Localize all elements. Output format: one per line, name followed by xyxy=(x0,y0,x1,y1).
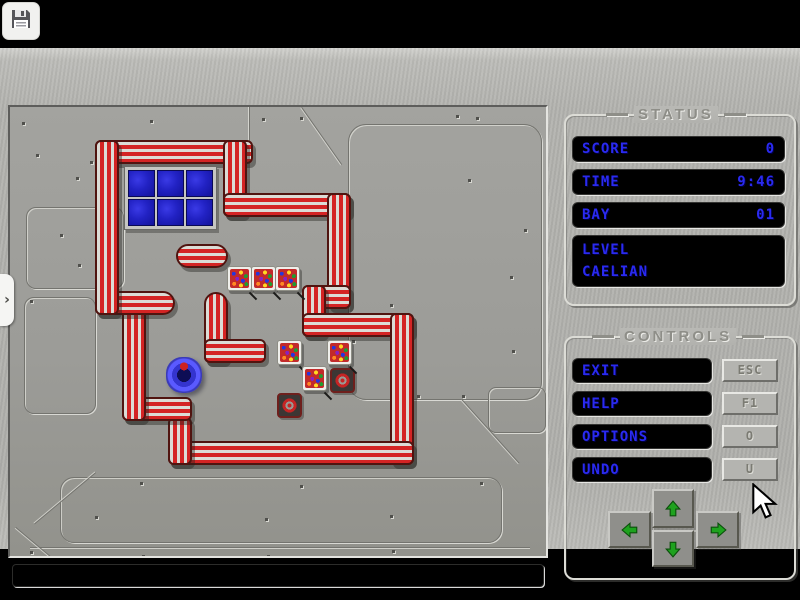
panel-etching xyxy=(348,124,542,400)
crate xyxy=(327,340,352,365)
rivet xyxy=(390,515,393,518)
crate xyxy=(302,366,327,391)
panel-etching xyxy=(488,387,546,433)
title-rule-left xyxy=(592,335,614,338)
rivet xyxy=(267,555,270,558)
crate xyxy=(227,266,252,291)
key-esc-button[interactable]: ESC xyxy=(722,359,778,382)
rivet xyxy=(480,482,483,485)
window-tile xyxy=(128,199,155,226)
rivet xyxy=(140,482,143,485)
undo-button[interactable]: UNDO xyxy=(572,457,712,482)
status-row-time: TIME9:46 xyxy=(572,169,785,195)
window-tile xyxy=(128,170,155,197)
crate xyxy=(277,340,302,365)
status-row-score: SCORE0 xyxy=(572,136,785,162)
rivet xyxy=(462,395,465,398)
rivet xyxy=(95,516,98,519)
arrow-left-icon xyxy=(621,521,639,539)
rivet xyxy=(60,234,63,237)
rivet xyxy=(476,117,479,120)
panel-etching xyxy=(60,477,502,543)
panel-line xyxy=(30,547,530,548)
crate xyxy=(251,266,276,291)
rivet xyxy=(262,118,265,121)
status-value: 0 xyxy=(766,141,775,157)
status-label: BAY xyxy=(582,207,610,223)
arrow-right-icon xyxy=(709,521,727,539)
rivet xyxy=(456,115,459,118)
title-rule-left xyxy=(606,113,628,116)
wall-segment xyxy=(95,140,119,315)
status-label: TIME xyxy=(582,174,620,190)
save-button[interactable] xyxy=(2,2,40,40)
window-tile xyxy=(157,170,184,197)
status-value: 9:46 xyxy=(737,174,775,190)
player-character xyxy=(166,357,202,393)
status-panel-title: STATUS xyxy=(606,106,746,123)
rivet xyxy=(142,555,145,558)
dpad-left-button[interactable] xyxy=(608,511,651,548)
target-pad xyxy=(277,393,302,418)
chevron-right-icon: › xyxy=(4,292,10,308)
title-rule-right xyxy=(724,113,746,116)
rivet xyxy=(300,485,303,488)
rivet xyxy=(300,117,303,120)
side-panel-tab[interactable]: › xyxy=(0,274,14,326)
key-o-button[interactable]: O xyxy=(722,425,778,448)
game-window-frame: STATUS SCORE0TIME9:46BAY01 LEVEL CAELIAN… xyxy=(0,48,800,549)
rivet xyxy=(30,551,33,554)
exit-button[interactable]: EXIT xyxy=(572,358,712,383)
rivet xyxy=(30,300,33,303)
message-bar xyxy=(12,564,544,587)
wall-segment xyxy=(176,244,228,268)
level-name: CAELIAN xyxy=(582,264,648,280)
panel-line xyxy=(15,527,51,557)
rivet xyxy=(36,154,39,157)
rivet xyxy=(78,264,81,267)
rivet xyxy=(22,122,25,125)
button-label: EXIT xyxy=(582,363,620,379)
wall-segment xyxy=(168,441,414,465)
arrow-up-icon xyxy=(664,500,682,518)
wall-segment xyxy=(168,417,192,465)
panel-etching xyxy=(24,297,96,414)
rivet xyxy=(76,177,79,180)
game-board xyxy=(8,105,548,558)
options-button[interactable]: OPTIONS xyxy=(572,424,712,449)
controls-panel-title: CONTROLS xyxy=(592,328,764,345)
status-row-bay: BAY01 xyxy=(572,202,785,228)
button-label: UNDO xyxy=(582,462,620,478)
rivet xyxy=(352,340,355,343)
status-value: 01 xyxy=(756,207,775,223)
level-label: LEVEL xyxy=(582,242,629,258)
rivet xyxy=(510,276,513,279)
key-u-button[interactable]: U xyxy=(722,458,778,481)
rivet xyxy=(150,120,153,123)
rivet xyxy=(390,304,393,307)
help-button[interactable]: HELP xyxy=(572,391,712,416)
dpad-right-button[interactable] xyxy=(696,511,739,548)
rivet xyxy=(512,350,515,353)
button-label: HELP xyxy=(582,396,620,412)
rivet xyxy=(468,179,471,182)
dpad-down-button[interactable] xyxy=(652,530,694,567)
floppy-disk-icon xyxy=(10,8,32,35)
rivet xyxy=(392,550,395,553)
rivet xyxy=(265,518,268,521)
rivet xyxy=(524,229,527,232)
key-f1-button[interactable]: F1 xyxy=(722,392,778,415)
rivet xyxy=(417,395,420,398)
window-tile xyxy=(186,170,213,197)
status-label: SCORE xyxy=(582,141,629,157)
rivet xyxy=(90,161,93,164)
panel-line xyxy=(301,107,342,165)
window-tile xyxy=(186,199,213,226)
target-pad xyxy=(330,368,355,393)
panel-line xyxy=(249,107,250,143)
level-display: LEVEL CAELIAN xyxy=(572,235,785,287)
level-exit-window xyxy=(124,166,217,230)
crate xyxy=(275,266,300,291)
title-rule-right xyxy=(742,335,764,338)
arrow-down-icon xyxy=(664,540,682,558)
button-label: OPTIONS xyxy=(582,429,648,445)
dpad-up-button[interactable] xyxy=(652,489,694,528)
window-tile xyxy=(157,199,184,226)
wall-segment xyxy=(204,339,266,363)
